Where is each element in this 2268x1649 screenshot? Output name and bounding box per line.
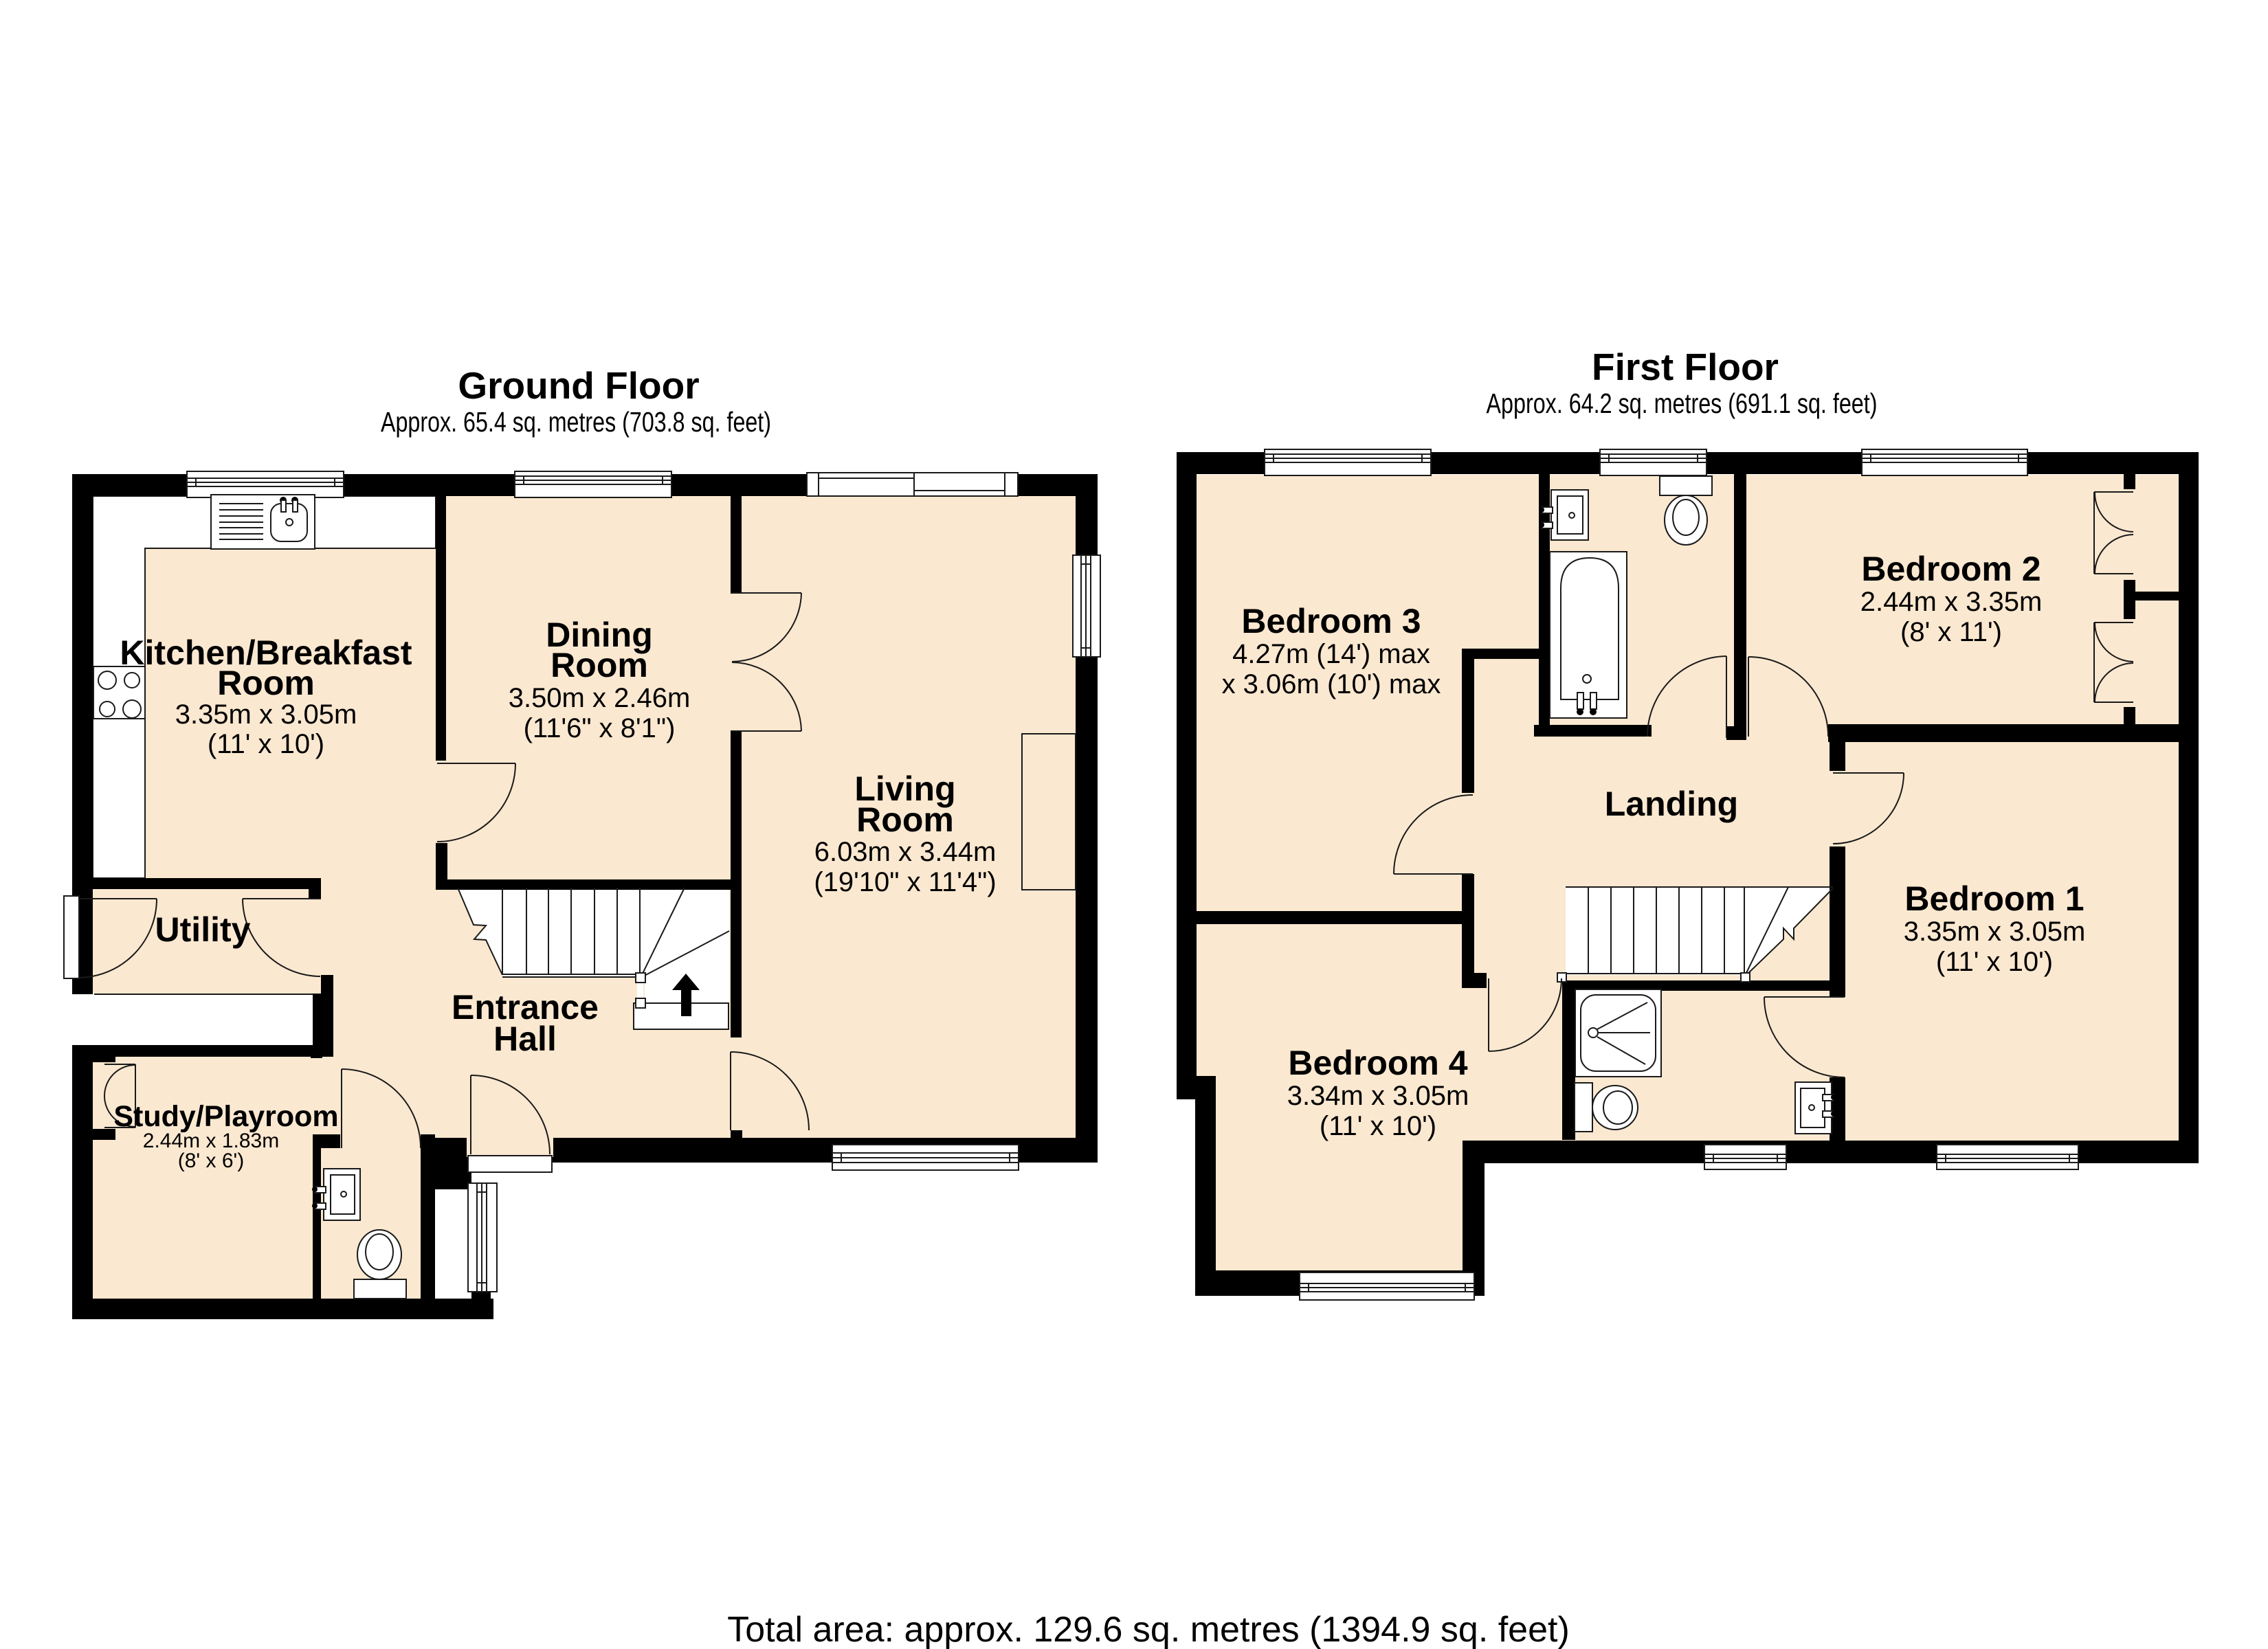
svg-text:Bedroom 1: Bedroom 1 xyxy=(1904,879,2084,918)
svg-text:Room: Room xyxy=(217,664,315,702)
svg-text:(8' x 6'): (8' x 6') xyxy=(178,1149,244,1172)
svg-text:(11' x 10'): (11' x 10') xyxy=(208,729,324,759)
svg-text:3.35m x 3.05m: 3.35m x 3.05m xyxy=(175,699,357,730)
svg-text:x 3.06m (10') max: x 3.06m (10') max xyxy=(1222,669,1441,699)
svg-text:Study/Playroom: Study/Playroom xyxy=(113,1100,338,1133)
svg-text:(19'10" x 11'4"): (19'10" x 11'4") xyxy=(814,867,996,897)
svg-text:4.27m (14') max: 4.27m (14') max xyxy=(1232,639,1430,669)
svg-text:Bedroom 3: Bedroom 3 xyxy=(1241,602,1421,640)
svg-text:6.03m x 3.44m: 6.03m x 3.44m xyxy=(814,837,997,867)
svg-text:2.44m x 3.35m: 2.44m x 3.35m xyxy=(1860,587,2043,617)
svg-text:3.50m x 2.46m: 3.50m x 2.46m xyxy=(509,683,691,713)
svg-text:Room: Room xyxy=(856,800,954,839)
svg-text:Bedroom 2: Bedroom 2 xyxy=(1861,550,2041,588)
svg-text:(11' x 10'): (11' x 10') xyxy=(1936,947,2053,977)
svg-text:Utility: Utility xyxy=(155,910,251,949)
svg-text:Approx. 65.4 sq. metres (703.8: Approx. 65.4 sq. metres (703.8 sq. feet) xyxy=(381,406,771,438)
svg-text:Ground Floor: Ground Floor xyxy=(458,364,699,407)
svg-text:(11' x 10'): (11' x 10') xyxy=(1320,1111,1436,1141)
svg-text:Landing: Landing xyxy=(1605,785,1738,823)
svg-text:Room: Room xyxy=(551,646,648,684)
svg-text:(11'6" x 8'1"): (11'6" x 8'1") xyxy=(524,713,676,743)
svg-text:Bedroom 4: Bedroom 4 xyxy=(1288,1044,1467,1082)
svg-text:Approx. 64.2 sq. metres (691.1: Approx. 64.2 sq. metres (691.1 sq. feet) xyxy=(1487,388,1878,419)
svg-text:3.34m x 3.05m: 3.34m x 3.05m xyxy=(1287,1081,1469,1111)
svg-text:3.35m x 3.05m: 3.35m x 3.05m xyxy=(1904,917,2086,947)
svg-text:First Floor: First Floor xyxy=(1592,346,1779,388)
svg-text:(8' x 11'): (8' x 11') xyxy=(1900,617,2002,647)
svg-text:Total area: approx. 129.6 sq.: Total area: approx. 129.6 sq. metres (13… xyxy=(727,1610,1570,1649)
svg-text:Hall: Hall xyxy=(493,1020,557,1058)
